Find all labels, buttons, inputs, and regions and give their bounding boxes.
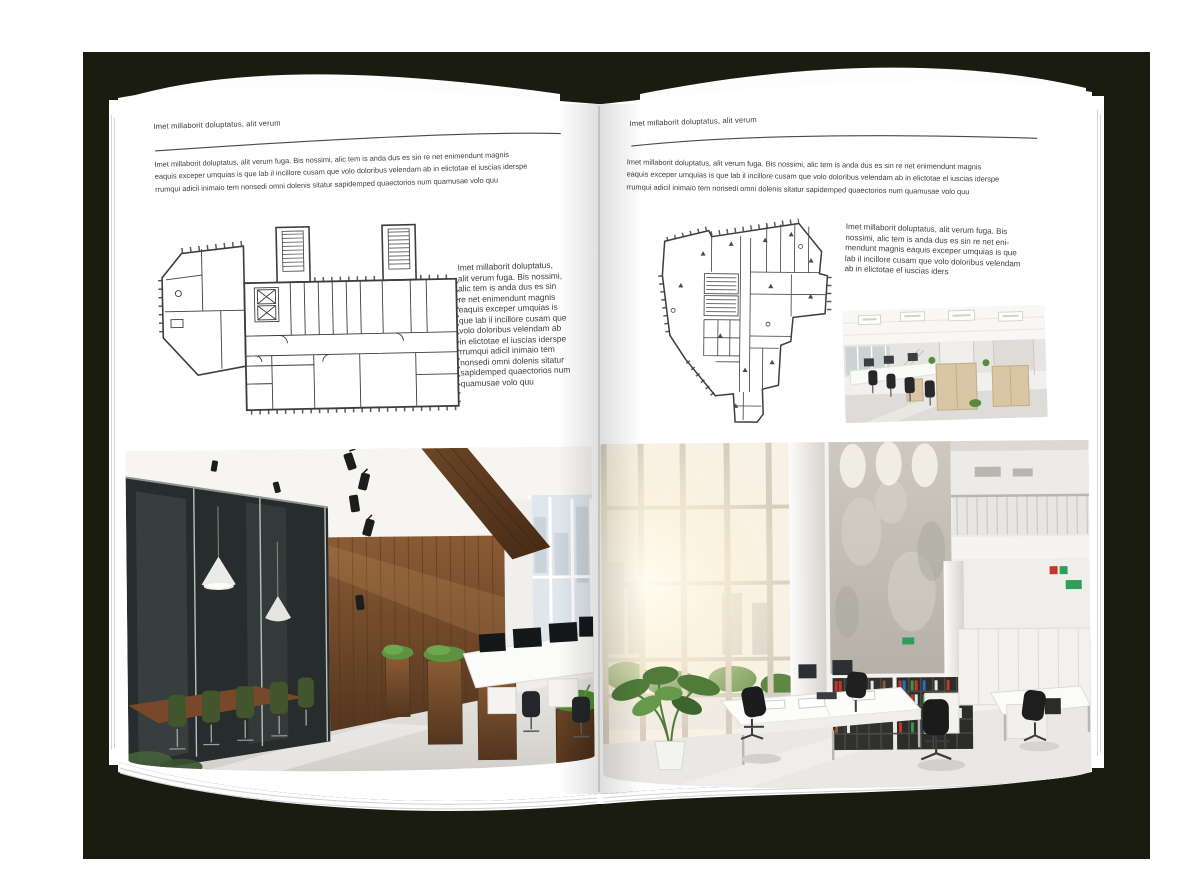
office-photo-atrium [600,440,1091,790]
floor-plan-drawing [647,215,847,425]
side-text-column: Imet millaborit doluptatus, alit verum f… [457,259,590,389]
office-photo-small [842,305,1047,423]
side-paragraph: Imet millaborit doluptatus, alit verum f… [844,222,1046,281]
header-rule [629,124,1041,155]
intro-paragraph: Imet millaborit doluptatus, alit verum f… [154,147,585,196]
glass-meeting-room [125,475,330,773]
stairwell [276,225,416,283]
office-photo-loft [125,447,594,774]
page-header: Imet millaborit doluptatus, alit verum [153,118,280,131]
magazine-mockup-scene: Imet millaborit doluptatus, alit verum I… [0,0,1200,891]
elevator-shaft [254,287,279,321]
intro-paragraph: Imet millaborit doluptatus, alit verum f… [626,156,1056,199]
page-left: Imet millaborit doluptatus, alit verum I… [115,76,600,798]
page-right: Imet millaborit doluptatus, alit verum I… [600,74,1094,798]
mezzanine [950,440,1089,559]
page-header: Imet millaborit doluptatus, alit verum [629,115,756,128]
floor-plan-drawing [157,222,461,424]
